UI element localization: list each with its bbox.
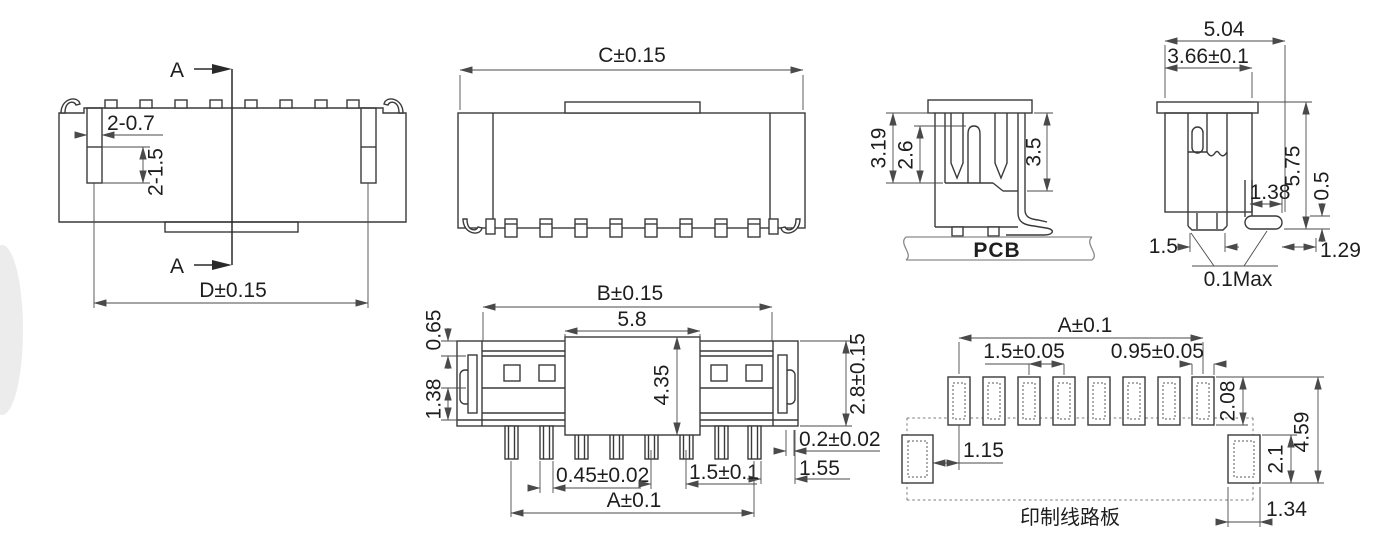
dim-label: 1.15: [963, 439, 1004, 462]
pads-row: [948, 377, 1214, 425]
smt-lead: [1006, 113, 1052, 235]
top-flange: [1157, 102, 1258, 113]
dim-label: 5.8: [617, 308, 646, 331]
dim-pad-height: 2.08: [1216, 377, 1248, 425]
dim-label: 0.1Max: [1204, 268, 1273, 291]
dim-pad-pitch: 1.5±0.05: [983, 340, 1065, 375]
dim-label: 2.6: [895, 140, 918, 169]
dim-label: D±0.15: [199, 279, 267, 302]
corner-hook-icon: [61, 99, 80, 113]
dim-housing-depth: 3.66±0.1: [1165, 45, 1252, 98]
dim-label: 1.5±0.1: [689, 461, 759, 484]
dim-label: 1.29: [1320, 239, 1361, 262]
dim-label: 3.66±0.1: [1167, 45, 1249, 68]
section-label: A: [170, 255, 184, 278]
dim-body-width: 2.8±0.15: [800, 333, 870, 426]
side-view: 5.04 3.66±0.1 5.75 0.5 1.38: [1149, 18, 1361, 291]
dim-overall-height: 5.75: [1254, 102, 1312, 229]
dim-label: B±0.15: [597, 282, 663, 305]
dim-coplanarity: 0.1Max: [1191, 231, 1278, 291]
dim-label: C±0.15: [598, 44, 666, 67]
section-a-a-view: PCB 3.19 2.6 3.5: [868, 100, 1095, 262]
dim-label: 2.1: [1265, 444, 1288, 473]
dim-lead-length: 1.38: [1250, 181, 1291, 213]
dim-lead-thickness: 0.5: [1310, 171, 1334, 242]
dim-label: 1.38: [423, 379, 446, 420]
dim-label: A±0.1: [1058, 314, 1113, 337]
dim-overall-length: C±0.15: [460, 44, 803, 110]
back-view: A A 2-0.7 2-1.5 D±0.15: [59, 59, 406, 308]
engineering-drawing-page: A A 2-0.7 2-1.5 D±0.15: [0, 0, 1379, 535]
dim-label: 3.5: [1023, 137, 1046, 166]
dim-label: 2-0.7: [107, 112, 155, 135]
dim-label: 1.55: [799, 457, 840, 480]
dim-label: 0.5: [1311, 171, 1334, 200]
corner-pad: [902, 435, 933, 483]
dim-tip-clearance: 1.29: [1282, 238, 1361, 262]
connector-drawing-canvas: A A 2-0.7 2-1.5 D±0.15: [0, 0, 1379, 535]
dim-label: 5.04: [1204, 18, 1245, 41]
corner-pad: [1228, 435, 1260, 483]
pcb-land-pattern: A±0.1 1.5±0.05 0.95±0.05 2.08 4.59: [902, 314, 1324, 529]
dim-label: 4.35: [651, 365, 674, 406]
top-flange: [928, 100, 1032, 113]
dim-label: 1.34: [1266, 498, 1307, 521]
housing-section: [935, 113, 1018, 236]
dim-corner-pad-gap: 1.15: [933, 425, 1004, 470]
dim-label: 2-1.5: [145, 148, 168, 196]
scan-smudge: [0, 245, 23, 415]
corner-hook-icon: [384, 99, 403, 113]
dim-label: 1.5±0.05: [983, 340, 1065, 363]
dim-label: 0.45±0.02: [556, 464, 649, 487]
dim-corner-pad-width: 1.34: [1216, 487, 1307, 527]
dim-label: 0.95±0.05: [1111, 340, 1204, 363]
top-view: 4.35 B±0.15 5.8 0.65 1.38: [423, 282, 881, 517]
dim-label: 0.65: [423, 310, 446, 351]
dim-label: 0.2±0.02: [799, 428, 881, 451]
board-caption: 印制线路板: [1020, 506, 1120, 529]
dim-plating-thickness: 0.2±0.02: [774, 428, 881, 456]
housing-side: [1165, 113, 1252, 230]
dim-label: A±0.1: [607, 489, 662, 512]
dim-pad-width: 0.95±0.05: [1111, 340, 1226, 375]
dim-cavity-depth: 3.5: [1023, 113, 1054, 191]
dim-label: 2.8±0.15: [847, 333, 870, 415]
pcb-board: PCB: [904, 237, 1095, 262]
top-boss: [565, 102, 700, 113]
fitting-nail: [769, 219, 778, 234]
dim-label: 1.5: [1149, 235, 1178, 258]
dim-label: 1.38: [1250, 181, 1291, 204]
section-label: A: [170, 59, 184, 82]
center-tab: [565, 337, 700, 435]
front-view: C±0.15: [458, 44, 805, 237]
body-outline: [458, 113, 805, 228]
dim-label: 4.59: [1291, 412, 1314, 453]
dim-label: 3.19: [868, 128, 891, 169]
pcb-label: PCB: [973, 239, 1020, 262]
fitting-nail: [486, 219, 495, 234]
dim-label: 2.08: [1217, 381, 1240, 422]
